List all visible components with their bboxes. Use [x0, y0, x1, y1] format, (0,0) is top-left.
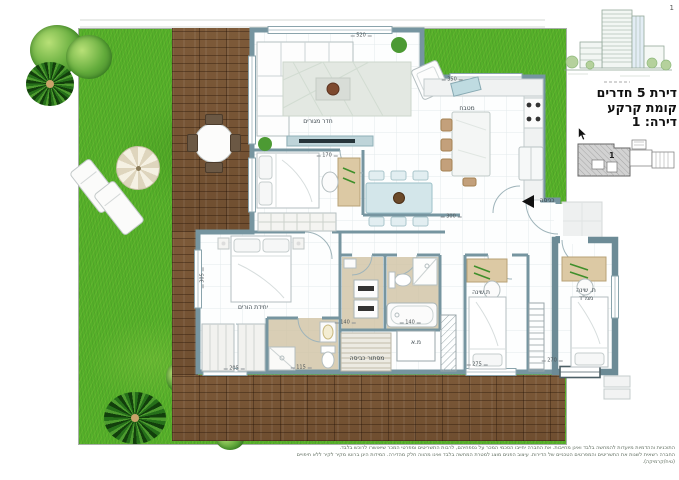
- label-entrance: כניסה: [540, 198, 555, 204]
- disclaimer-line2: החברה רשאית לשנות את התשריטים והמפרטים ה…: [283, 452, 675, 466]
- title-unit: דירה: 1: [556, 115, 677, 130]
- dim-master-window: 305: [201, 268, 206, 289]
- title-floor: קומת קרקע: [556, 101, 677, 116]
- building-sketch: [560, 4, 675, 86]
- entrance-arrow-icon: [521, 194, 536, 209]
- dim-living-width: 520: [351, 34, 372, 39]
- label-kitchen: מטבח: [459, 106, 474, 112]
- label-laundry-screen: מסתור כביסה: [350, 356, 385, 362]
- dim-bedroom1-width: 170: [317, 154, 338, 159]
- key-plan: [574, 136, 678, 184]
- title-rooms: דירת 5 חדרים: [556, 86, 677, 101]
- dim-dining-width: 300: [441, 215, 462, 220]
- dim-bath1-width: 140: [335, 321, 356, 326]
- label-mamad-line2: ממ"ד: [579, 296, 593, 302]
- dim-bedroom2-width: 275: [467, 363, 488, 368]
- label-mamad-line1: ת. שינה: [576, 288, 596, 294]
- keyplan-unit-number: 1: [609, 151, 615, 160]
- dim-mamad-width: 270: [542, 359, 563, 364]
- label-ac-closet: מ.א: [411, 340, 421, 346]
- dim-bath2-width: 140: [400, 321, 421, 326]
- label-living-room: חדר מגורים: [303, 119, 332, 125]
- dim-kitchen-width: 350: [442, 78, 463, 83]
- dim-closet-width: 205: [224, 367, 245, 372]
- disclaimer: התוכניות וההדמיות מיועדות להמחשה בלבד וא…: [283, 445, 675, 466]
- label-bedroom2: ת.שינה: [472, 290, 490, 296]
- label-master-suite: יחידת הורים: [238, 305, 268, 311]
- floorplan-page: חדר מגורים מטבח כניסה יחידת הורים ת.שינה…: [0, 0, 679, 480]
- apartment-title-block: דירת 5 חדרים קומת קרקע דירה: 1: [556, 86, 677, 130]
- dim-ensuite-width: 115: [291, 366, 312, 371]
- disclaimer-line1: התוכניות וההדמיות מיועדות להמחשה בלבד וא…: [283, 445, 675, 452]
